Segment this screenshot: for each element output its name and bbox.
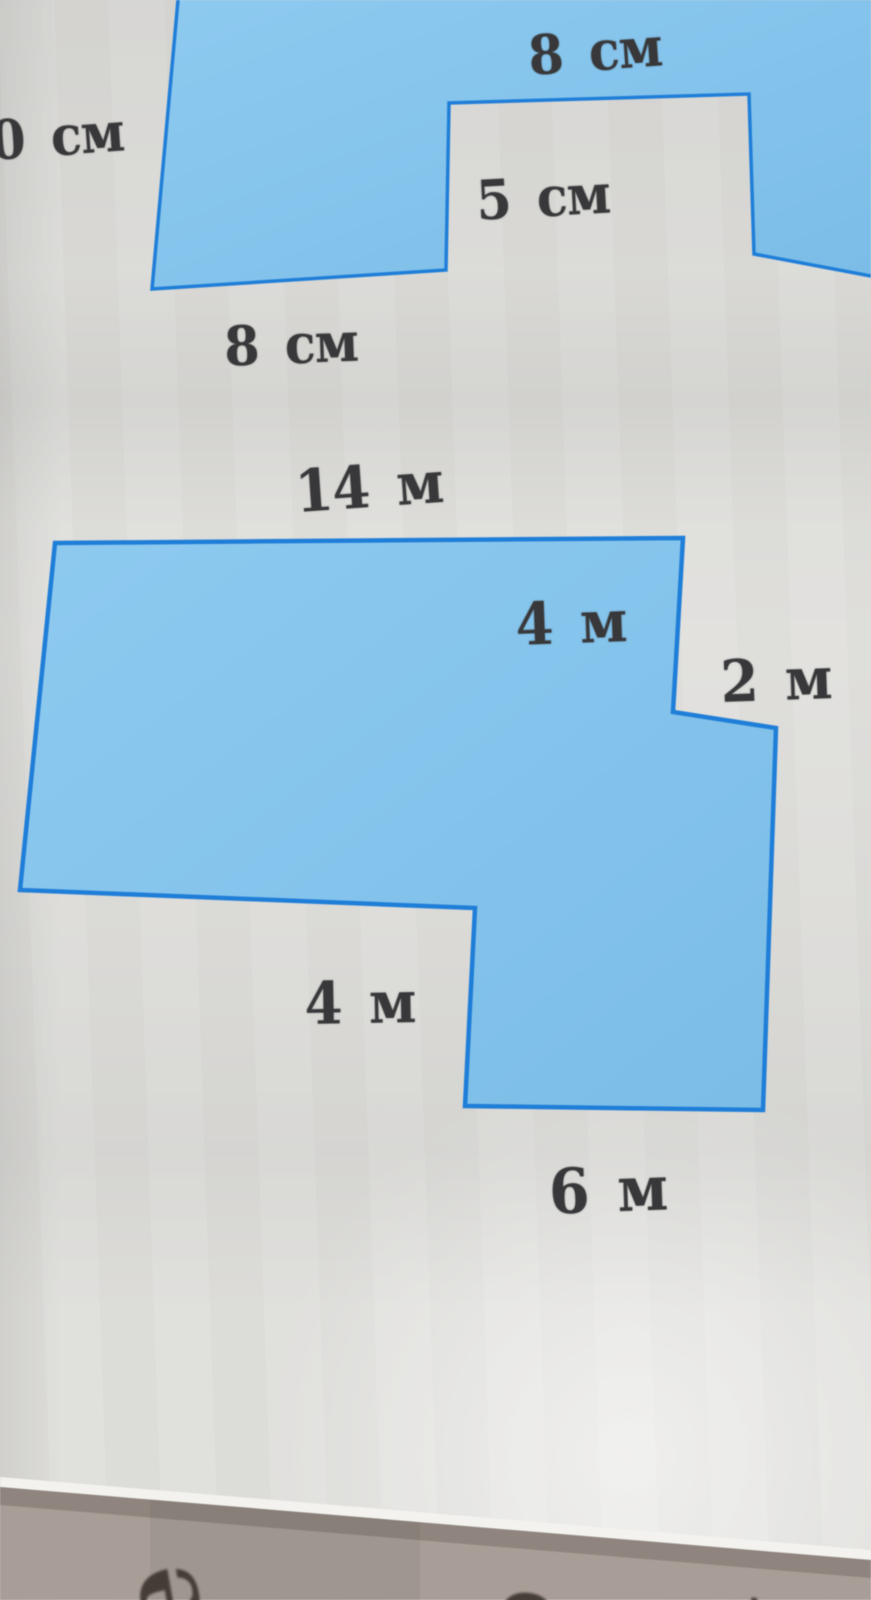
textbook-page-photo: 8 см 0 см 5 см 8 см 14 м 4 м 2 м 4 м 6 м… <box>0 0 871 1600</box>
dimension-label-bottom-6m: 6 м <box>548 1151 669 1228</box>
top-figure-shape <box>152 0 871 289</box>
dimension-label-notch-depth: 5 см <box>475 162 612 233</box>
dimension-label-notch-top-width: 8 см <box>526 14 664 87</box>
dimension-label-bottom-width: 8 см <box>223 310 359 379</box>
dimension-label-inner-4m: 4 м <box>304 968 416 1038</box>
dimension-label-right-upper-4m: 4 м <box>514 587 627 659</box>
dimension-label-top-width-14m: 14 м <box>293 448 445 526</box>
dimension-label-step-2m: 2 м <box>719 644 832 716</box>
dimension-label-left-height-cutoff: 0 см <box>0 99 126 172</box>
geometry-figures-canvas <box>0 0 871 1600</box>
